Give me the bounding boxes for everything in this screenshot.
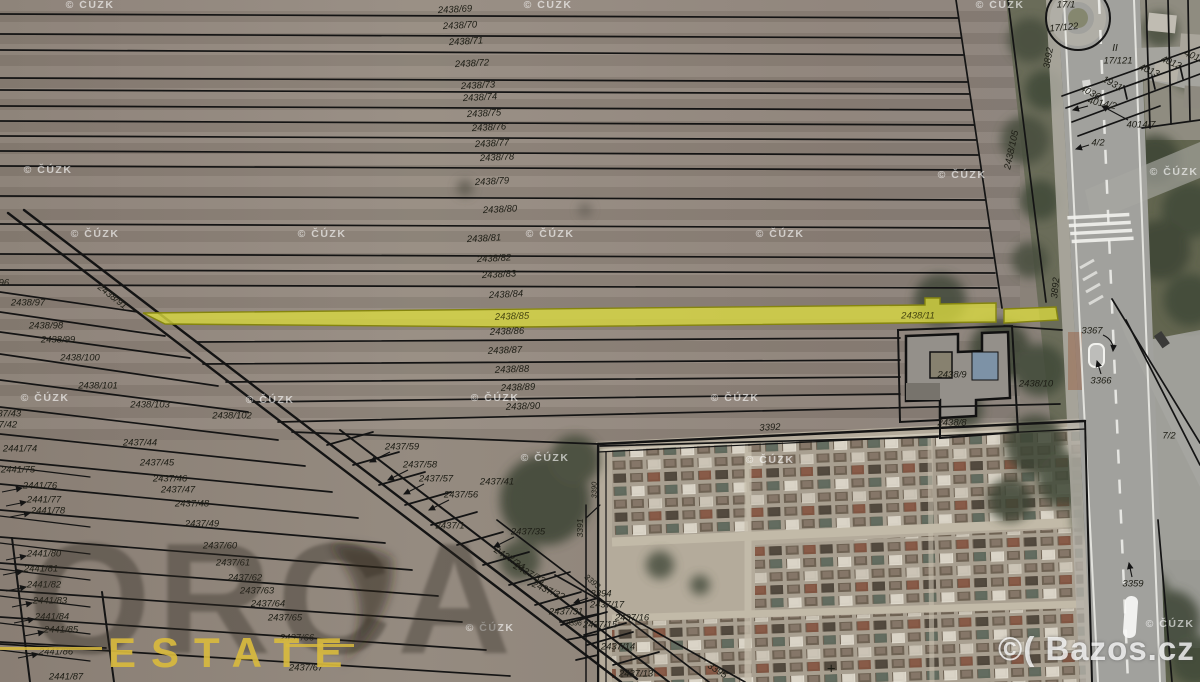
cadastral-map[interactable]: 2438/692438/702438/712438/722438/732438/… <box>0 0 1200 682</box>
orca-line-left <box>0 647 102 650</box>
cuzk-watermark: © ČÚZK <box>746 454 795 466</box>
cuzk-watermark: © ČÚZK <box>976 0 1025 11</box>
cuzk-watermark: © ČÚZK <box>938 169 987 181</box>
bazos-watermark: ©( Bazos.cz <box>998 630 1195 668</box>
cuzk-watermark: © ČÚZK <box>1146 618 1195 630</box>
cuzk-watermark: © ČÚZK <box>21 392 70 404</box>
cuzk-watermark: © ČÚZK <box>711 392 760 404</box>
cuzk-watermark: © ČÚZK <box>526 228 575 240</box>
cuzk-watermark: © ČÚZK <box>471 392 520 404</box>
cuzk-watermark: © ČÚZK <box>756 228 805 240</box>
cuzk-watermark: © ČÚZK <box>24 164 73 176</box>
cuzk-watermark: © ČÚZK <box>1150 166 1199 178</box>
cuzk-watermark: © ČÚZK <box>521 452 570 464</box>
orca-estate-text: ESTATE <box>108 632 357 674</box>
cuzk-watermark: © ČÚZK <box>71 228 120 240</box>
cuzk-watermark: © ČÚZK <box>66 0 115 11</box>
cuzk-watermark: © ČÚZK <box>246 394 295 406</box>
cuzk-watermark: © ČÚZK <box>298 228 347 240</box>
cuzk-watermark: © ČÚZK <box>524 0 573 11</box>
